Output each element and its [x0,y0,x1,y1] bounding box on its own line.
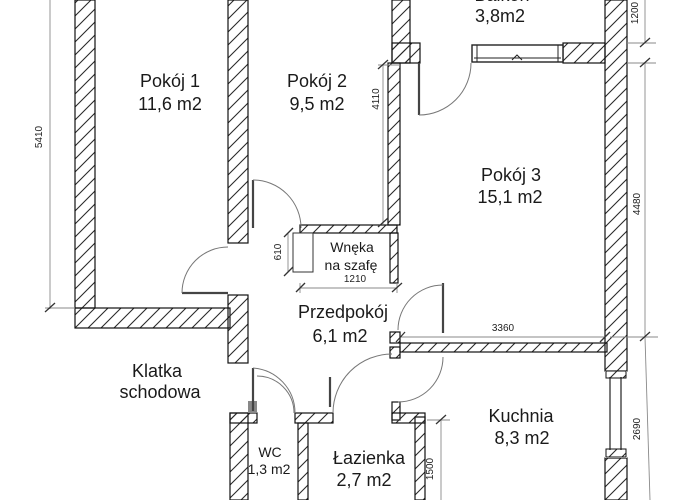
room-label-lazienka-name: Łazienka [333,449,405,467]
room-label-wc-name: WC [258,445,281,459]
dimension-610: 610 [274,244,284,261]
wneka-closet-stub [293,233,313,272]
room-label-balkon-name: Balkon [474,0,529,4]
room-label-wneka-line2: na szafę [325,258,378,272]
windows [472,45,627,458]
dimension-2690: 2690 [633,418,643,440]
room-label-klatka-line2: schodowa [119,383,200,401]
room-label-kuchnia-area: 8,3 m2 [494,429,549,447]
room-label-pokoj3-name: Pokój 3 [481,166,541,184]
room-label-przedpokoj-name: Przedpokój [298,303,388,321]
room-label-pokoj2-area: 9,5 m2 [289,95,344,113]
dimension-left-5410: 5410 [35,126,45,148]
dimension-1210: 1210 [344,275,366,285]
dimension-3360: 3360 [492,324,514,334]
room-label-pokoj2-name: Pokój 2 [287,72,347,90]
room-label-wc-area: 1,3 m2 [248,462,291,476]
room-label-lazienka-area: 2,7 m2 [336,471,391,489]
room-label-klatka-line1: Klatka [132,362,182,380]
room-label-przedpokoj-area: 6,1 m2 [312,327,367,345]
room-label-kuchnia-name: Kuchnia [488,407,553,425]
room-label-pokoj3-area: 15,1 m2 [477,188,542,206]
dimension-balkon-1200: 1200 [631,2,641,24]
dimension-4480: 4480 [633,193,643,215]
room-label-balkon-area: 3,8m2 [475,7,525,25]
room-label-pokoj1-name: Pokój 1 [140,72,200,90]
dimension-4110: 4110 [372,88,382,110]
dimension-1500: 1500 [426,458,436,480]
room-label-wneka-line1: Wnęka [330,240,374,254]
floor-plan: Pokój 1 11,6 m2 Pokój 2 9,5 m2 Balkon 3,… [0,0,700,500]
room-label-pokoj1-area: 11,6 m2 [138,95,202,113]
doors [182,63,471,413]
